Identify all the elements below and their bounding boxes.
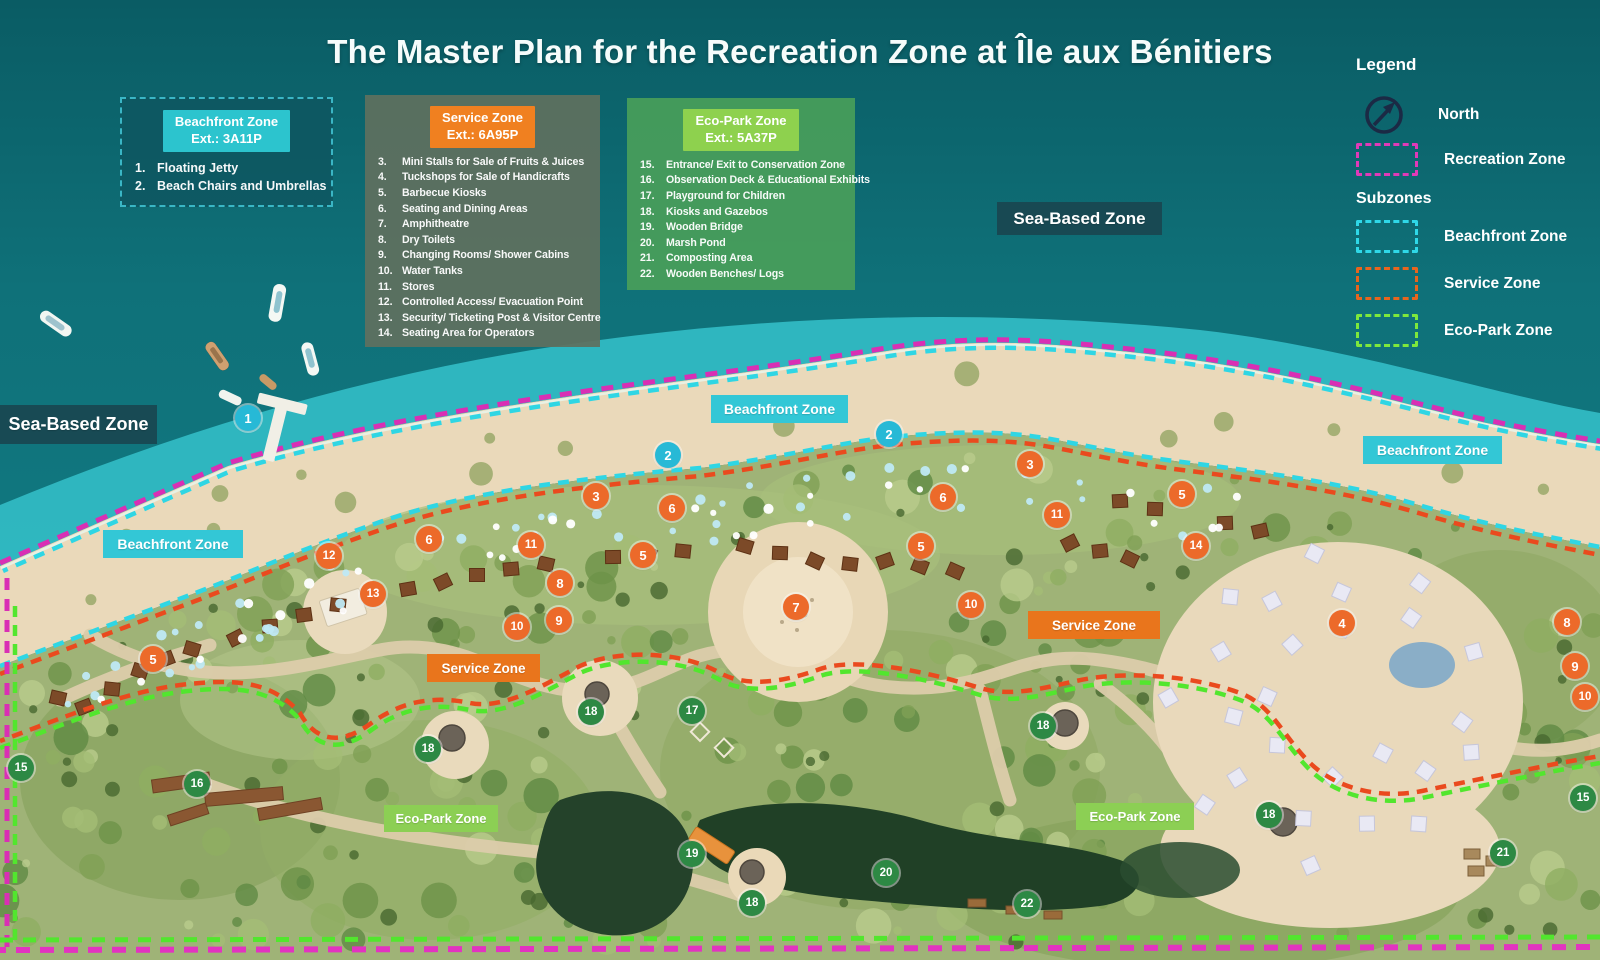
zone-card-item: 20.Marsh Pond	[640, 236, 849, 252]
zone-card-header: Service ZoneExt.: 6A95P	[430, 106, 535, 148]
subzone-label: Eco-Park Zone	[1444, 322, 1553, 340]
map-label-eco-park-zone: Eco-Park Zone	[1076, 803, 1194, 830]
map-marker-6: 6	[930, 484, 956, 510]
legend-title: Legend	[1356, 55, 1591, 75]
zone-card-item: 3.Mini Stalls for Sale of Fruits & Juice…	[378, 155, 594, 171]
zone-card-item: 8.Dry Toilets	[378, 233, 594, 249]
map-label-service-zone: Service Zone	[427, 654, 540, 682]
subzone-legend-rows: Beachfront ZoneService ZoneEco-Park Zone	[1356, 220, 1591, 347]
north-compass-icon	[1356, 93, 1412, 137]
zone-card-item: 13.Security/ Ticketing Post & Visitor Ce…	[378, 311, 594, 327]
zone-card-header: Eco-Park ZoneExt.: 5A37P	[683, 109, 798, 151]
map-marker-21: 21	[1490, 840, 1516, 866]
subzone-swatch	[1356, 314, 1418, 347]
map-marker-3: 3	[1017, 451, 1043, 477]
subzone-swatch	[1356, 220, 1418, 253]
zone-card-beachfront: Beachfront ZoneExt.: 3A11P 1.Floating Je…	[120, 97, 333, 207]
subzone-legend-row: Beachfront Zone	[1356, 220, 1591, 253]
map-marker-10: 10	[504, 614, 530, 640]
map-marker-8: 8	[1554, 609, 1580, 635]
map-marker-3: 3	[583, 483, 609, 509]
map-marker-12: 12	[316, 543, 342, 569]
master-plan-poster: The Master Plan for the Recreation Zone …	[0, 0, 1600, 960]
zone-card-item: 10.Water Tanks	[378, 264, 594, 280]
zone-card-item: 1.Floating Jetty	[135, 159, 325, 177]
zone-card-item: 14.Seating Area for Operators	[378, 326, 594, 342]
map-marker-16: 16	[184, 771, 210, 797]
map-label-eco-park-zone: Eco-Park Zone	[384, 805, 498, 832]
map-marker-7: 7	[783, 594, 809, 620]
map-marker-9: 9	[1562, 653, 1588, 679]
subzone-legend-row: Service Zone	[1356, 267, 1591, 300]
zone-card-ecopark: Eco-Park ZoneExt.: 5A37P 15.Entrance/ Ex…	[627, 98, 855, 290]
north-label: North	[1438, 106, 1479, 124]
map-marker-22: 22	[1014, 891, 1040, 917]
subzones-title: Subzones	[1356, 190, 1591, 208]
zone-card-item: 16.Observation Deck & Educational Exhibi…	[640, 173, 849, 189]
map-label-sea-based-zone: Sea-Based Zone	[0, 405, 157, 444]
zone-card-item-list: 3.Mini Stalls for Sale of Fruits & Juice…	[365, 155, 600, 342]
map-marker-2: 2	[876, 421, 902, 447]
map-marker-10: 10	[958, 592, 984, 618]
map-marker-6: 6	[416, 526, 442, 552]
map-label-beachfront-zone: Beachfront Zone	[711, 395, 848, 423]
zone-card-item: 6.Seating and Dining Areas	[378, 202, 594, 218]
recreation-swatch	[1356, 143, 1418, 176]
zone-card-item-list: 15.Entrance/ Exit to Conservation Zone16…	[627, 158, 855, 283]
map-marker-19: 19	[679, 841, 705, 867]
map-marker-18: 18	[1030, 713, 1056, 739]
map-marker-5: 5	[908, 533, 934, 559]
map-marker-6: 6	[659, 495, 685, 521]
map-marker-15: 15	[1570, 785, 1596, 811]
zone-card-item: 12.Controlled Access/ Evacuation Point	[378, 295, 594, 311]
map-label-sea-based-zone: Sea-Based Zone	[997, 202, 1162, 235]
map-marker-4: 4	[1329, 610, 1355, 636]
zone-card-header: Beachfront ZoneExt.: 3A11P	[163, 110, 290, 152]
legend-panel: Legend North Recreation Zone Subzones Be…	[1356, 55, 1591, 361]
zone-card-item: 11.Stores	[378, 280, 594, 296]
zone-card-item: 5.Barbecue Kiosks	[378, 186, 594, 202]
subzone-label: Beachfront Zone	[1444, 228, 1567, 246]
zone-card-item: 21.Composting Area	[640, 251, 849, 267]
map-marker-15: 15	[8, 755, 34, 781]
map-marker-2: 2	[655, 442, 681, 468]
zone-card-item: 17.Playground for Children	[640, 189, 849, 205]
zone-card-item: 19.Wooden Bridge	[640, 220, 849, 236]
map-marker-9: 9	[546, 607, 572, 633]
subzone-legend-row: Eco-Park Zone	[1356, 314, 1591, 347]
map-label-beachfront-zone: Beachfront Zone	[103, 530, 243, 558]
zone-card-item: 22.Wooden Benches/ Logs	[640, 267, 849, 283]
zone-card-item-list: 1.Floating Jetty2.Beach Chairs and Umbre…	[122, 159, 331, 195]
map-marker-11: 11	[1044, 502, 1070, 528]
map-marker-18: 18	[739, 890, 765, 916]
zone-card-item: 2.Beach Chairs and Umbrellas	[135, 177, 325, 195]
map-marker-5: 5	[140, 646, 166, 672]
map-marker-8: 8	[547, 570, 573, 596]
map-marker-18: 18	[415, 736, 441, 762]
map-label-beachfront-zone: Beachfront Zone	[1363, 436, 1502, 464]
recreation-label: Recreation Zone	[1444, 151, 1565, 169]
zone-card-service: Service ZoneExt.: 6A95P 3.Mini Stalls fo…	[365, 95, 600, 347]
map-marker-5: 5	[630, 542, 656, 568]
subzone-swatch	[1356, 267, 1418, 300]
map-marker-14: 14	[1183, 533, 1209, 559]
map-marker-20: 20	[873, 860, 899, 886]
map-marker-1: 1	[235, 405, 261, 431]
map-marker-13: 13	[360, 581, 386, 607]
map-marker-18: 18	[1256, 802, 1282, 828]
map-label-service-zone: Service Zone	[1028, 611, 1160, 639]
subzone-label: Service Zone	[1444, 275, 1541, 293]
page-title: The Master Plan for the Recreation Zone …	[300, 33, 1300, 71]
map-marker-11: 11	[518, 532, 544, 558]
map-marker-18: 18	[578, 699, 604, 725]
map-marker-10: 10	[1572, 684, 1598, 710]
zone-card-item: 9.Changing Rooms/ Shower Cabins	[378, 248, 594, 264]
map-marker-5: 5	[1169, 481, 1195, 507]
zone-card-item: 15.Entrance/ Exit to Conservation Zone	[640, 158, 849, 174]
zone-card-item: 18.Kiosks and Gazebos	[640, 205, 849, 221]
zone-card-item: 4.Tuckshops for Sale of Handicrafts	[378, 170, 594, 186]
map-marker-17: 17	[679, 698, 705, 724]
zone-card-item: 7.Amphitheatre	[378, 217, 594, 233]
